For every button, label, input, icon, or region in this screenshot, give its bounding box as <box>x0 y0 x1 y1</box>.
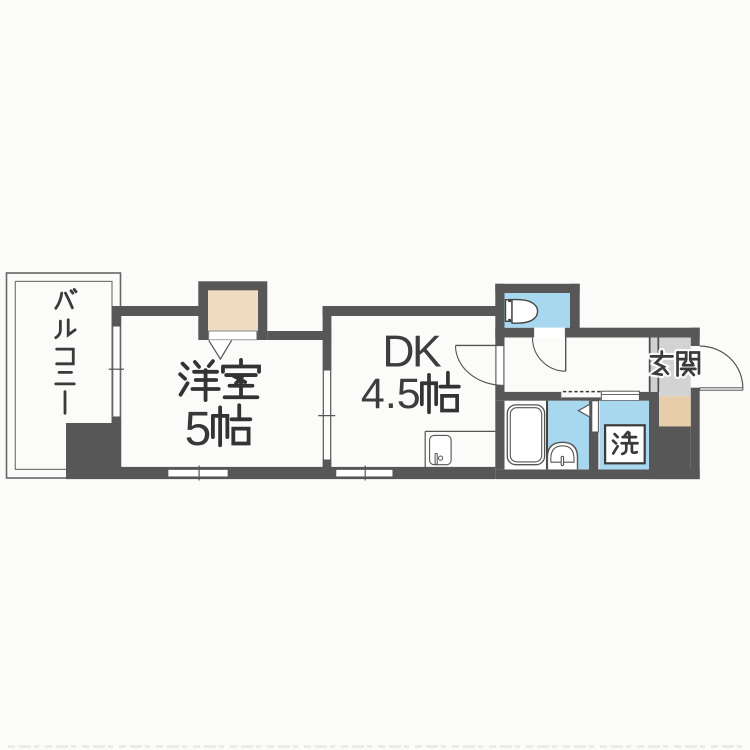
svg-text:4.5: 4.5 <box>361 370 421 418</box>
svg-text:5: 5 <box>185 403 212 456</box>
